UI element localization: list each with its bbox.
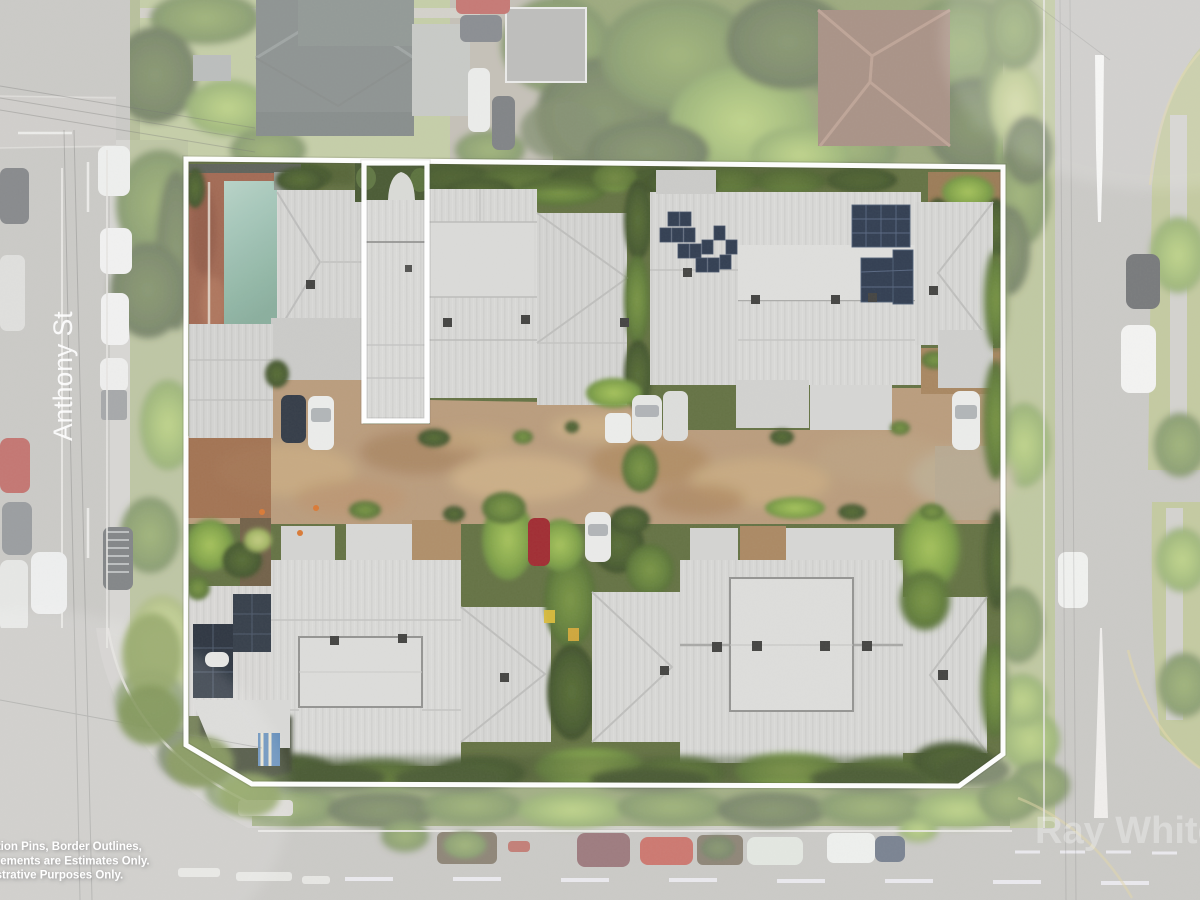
svg-text:Location Pins, Border Outlines: Location Pins, Border Outlines, xyxy=(0,841,142,853)
svg-text:Anthony St: Anthony St xyxy=(48,311,78,441)
svg-text:Measurements are Estimates Onl: Measurements are Estimates Only. xyxy=(0,855,150,867)
svg-text:Ray White: Ray White xyxy=(1035,810,1200,852)
svg-text:Illustrative Purposes Only.: Illustrative Purposes Only. xyxy=(0,869,123,881)
